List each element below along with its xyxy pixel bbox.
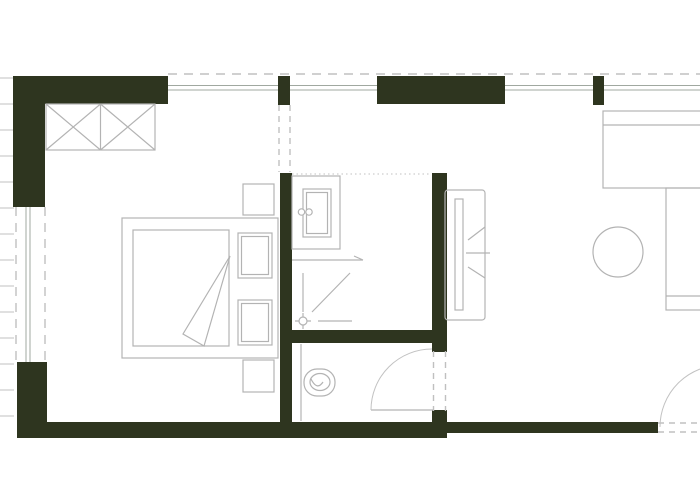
daybed-outline: [603, 111, 700, 188]
entry-door-swing-arc: [660, 365, 700, 427]
pillar-top-right: [593, 76, 604, 105]
wall-left-upper: [13, 76, 45, 207]
facade-hatch-marks: [0, 78, 14, 416]
bedroom-furniture: [46, 104, 278, 392]
floor-plan-page: [0, 0, 700, 500]
wall-bathroom-wc-divider: [281, 330, 433, 343]
window-top-2: [290, 86, 377, 91]
pillar-top-left: [278, 76, 290, 105]
wall-top-middle: [377, 76, 505, 104]
shower-drain: [299, 317, 307, 325]
wall-bottom-left: [17, 422, 447, 438]
round-table: [593, 227, 643, 277]
nightstand-bottom: [243, 360, 274, 392]
windows: [16, 74, 700, 362]
wall-bottom-right: [447, 422, 658, 433]
living-room-furniture: [445, 111, 700, 320]
side-desk-outline: [666, 188, 700, 310]
bed-pillow-top-outer: [238, 233, 272, 278]
floor-plan-svg: [0, 0, 700, 500]
wall-wc-right-upper-stub: [432, 330, 447, 352]
wc-fixtures: [301, 344, 335, 421]
faucet-handle-right: [306, 209, 312, 215]
window-top-4: [604, 86, 700, 91]
window-left-glazing: [26, 207, 30, 362]
window-top-3: [505, 86, 593, 91]
shower-diagonal: [312, 273, 350, 312]
wall-wc-right-lower-stub: [432, 410, 447, 422]
doors: [371, 349, 700, 427]
nightstand-top: [243, 184, 274, 215]
shower-direction-arrow: [292, 256, 363, 260]
exterior-hatching: [0, 78, 14, 416]
bed-blanket-fold: [183, 256, 230, 346]
tv-panel: [455, 199, 463, 310]
bed-pillow-bottom-outer: [238, 300, 272, 345]
bathroom-fixtures: [292, 176, 363, 329]
wall-bedroom-bathroom: [280, 173, 292, 423]
tv-bracket-marks: [466, 227, 490, 278]
wc-door-swing-arc: [371, 349, 432, 410]
faucet-handle-left: [298, 209, 304, 215]
tv-unit-outline: [445, 190, 485, 320]
window-top-1: [168, 86, 278, 91]
